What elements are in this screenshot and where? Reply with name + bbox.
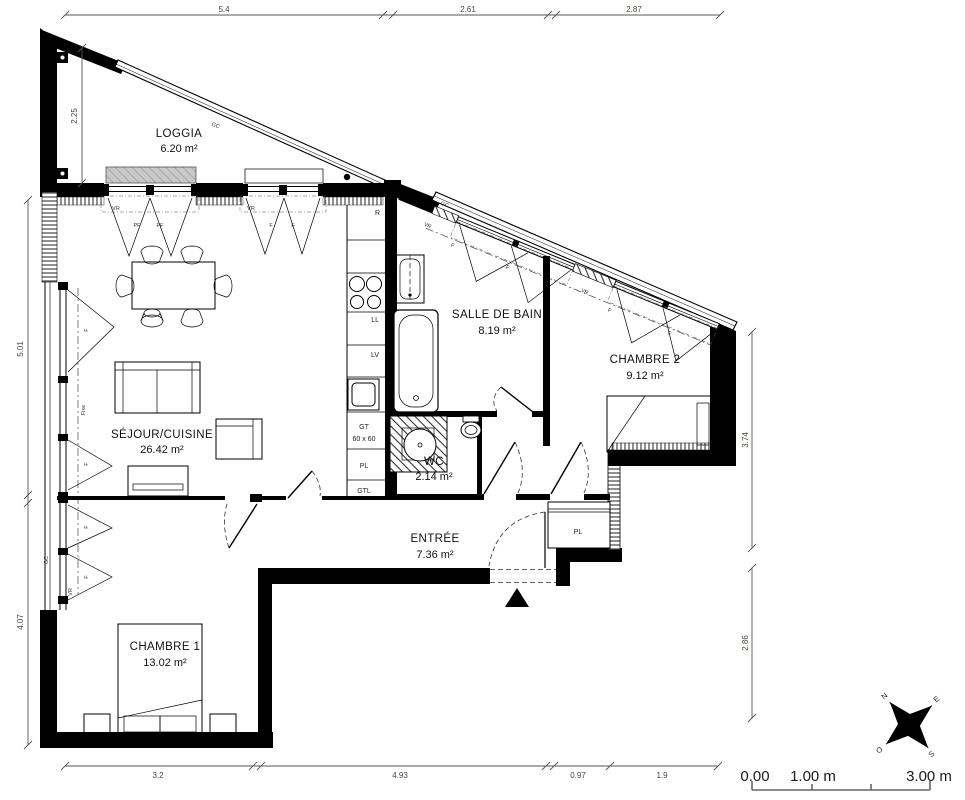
washer-label: LL	[371, 317, 379, 324]
pillow-1a	[124, 716, 160, 732]
f-label: F	[84, 525, 90, 529]
fridge-label: R	[375, 210, 380, 217]
dining-table	[116, 246, 232, 327]
room-label-sejour: SÉJOUR/CUISINE	[111, 428, 213, 441]
f-label: F	[84, 462, 90, 466]
scale-mid: 1.00 m	[790, 768, 836, 785]
vr-label: VR	[68, 588, 74, 596]
gt-label: GT	[359, 424, 369, 431]
closet-pl-entree: PL	[548, 502, 610, 548]
nightstand-left	[84, 714, 110, 734]
f-label: F	[607, 308, 613, 315]
room-label-entree: ENTRÉE	[410, 532, 459, 545]
washbasin	[396, 255, 424, 303]
pf-label: PF	[133, 223, 141, 229]
f-label: F	[450, 243, 456, 250]
dim-bottom-2: 4.93	[392, 771, 408, 780]
f-label: F	[667, 331, 673, 338]
dim-right-2: 2.86	[741, 635, 750, 651]
tv-console	[128, 466, 188, 496]
dim-left-2: 5.01	[16, 341, 25, 357]
gtl-label: GTL	[357, 488, 371, 495]
interior-partitions	[57, 197, 610, 502]
fixe-label: Fixe	[81, 405, 87, 415]
scale-start: 0.00	[740, 768, 769, 785]
room-area-sdb: 8.19 m²	[478, 325, 516, 337]
room-area-chambre1: 13.02 m²	[143, 657, 187, 669]
dim-bottom-1: 3.2	[152, 771, 164, 780]
entrance-arrow	[505, 588, 529, 607]
room-area-wc: 2.14 m²	[415, 471, 453, 483]
pl-label: PL	[360, 463, 369, 470]
sejour-furniture	[115, 246, 262, 496]
room-label-loggia: LOGGIA	[156, 128, 203, 140]
vr-label: VR	[247, 206, 255, 212]
f-label: F	[84, 328, 90, 332]
floor-plan-drawing: GC VR VR F F F F GC VR VR PF PF F F	[0, 0, 965, 800]
pillow-1b	[160, 716, 196, 732]
bathtub	[394, 310, 438, 412]
chambre2-furniture: PL	[548, 396, 712, 548]
dim-left-3: 4.07	[16, 614, 25, 630]
pillow-2	[697, 403, 709, 445]
f-label: F	[269, 223, 273, 229]
room-label-chambre2: CHAMBRE 2	[610, 354, 681, 366]
dim-top-2: 2.61	[460, 5, 476, 14]
loggia: GC	[57, 52, 350, 183]
compass-north: N	[879, 691, 889, 701]
gc-label: GC	[44, 556, 50, 564]
pf-label: PF	[156, 223, 164, 229]
dishwasher-label: LV	[371, 352, 379, 359]
scale-bar: 0.00 1.00 m 3.00 m	[740, 768, 952, 790]
kitchen: R LL LV GT 60 x 60 PL GTL	[347, 205, 385, 496]
vr-label: VR	[112, 206, 120, 212]
dim-top-1: 5.4	[218, 5, 230, 14]
room-area-chambre2: 9.12 m²	[626, 370, 664, 382]
compass-rose: N E S O	[874, 691, 941, 759]
bathroom-fixtures	[394, 255, 438, 412]
armchair	[216, 419, 262, 459]
f-label: F	[291, 223, 295, 229]
vr-label: VR	[423, 222, 432, 230]
nightstand-right	[210, 714, 236, 734]
room-label-chambre1: CHAMBRE 1	[130, 641, 201, 653]
cooktop	[350, 277, 382, 309]
f-label: F	[84, 575, 90, 579]
compass-east: E	[932, 694, 942, 704]
dim-bottom-3: 0.97	[570, 771, 586, 780]
vr-label: VR	[580, 288, 589, 296]
compass-south: S	[927, 749, 937, 759]
dim-top-3: 2.87	[626, 5, 642, 14]
compass-west: O	[874, 745, 884, 756]
floor-plan-page: GC VR VR F F F F GC VR VR PF PF F F	[0, 0, 965, 800]
room-label-sdb: SALLE DE BAIN	[452, 309, 542, 321]
gt-size-label: 60 x 60	[353, 436, 376, 443]
dim-left-1: 2.25	[70, 108, 79, 124]
left-glazing-swings: F Fixe F F F GC VR	[44, 288, 114, 600]
room-area-entree: 7.36 m²	[416, 549, 454, 561]
pl-label: PL	[574, 529, 583, 536]
scale-end: 3.00 m	[906, 768, 952, 785]
room-area-sejour: 26.42 m²	[140, 444, 184, 456]
room-label-wc: WC	[424, 456, 444, 468]
sofa	[115, 362, 200, 413]
room-area-loggia: 6.20 m²	[160, 143, 198, 155]
dim-right-1: 3.74	[741, 432, 750, 448]
toilet	[461, 416, 481, 438]
f-label: F	[505, 265, 511, 272]
gc-label: GC	[210, 122, 220, 131]
dim-bottom-4: 1.9	[656, 771, 668, 780]
kitchen-sink	[348, 379, 379, 410]
